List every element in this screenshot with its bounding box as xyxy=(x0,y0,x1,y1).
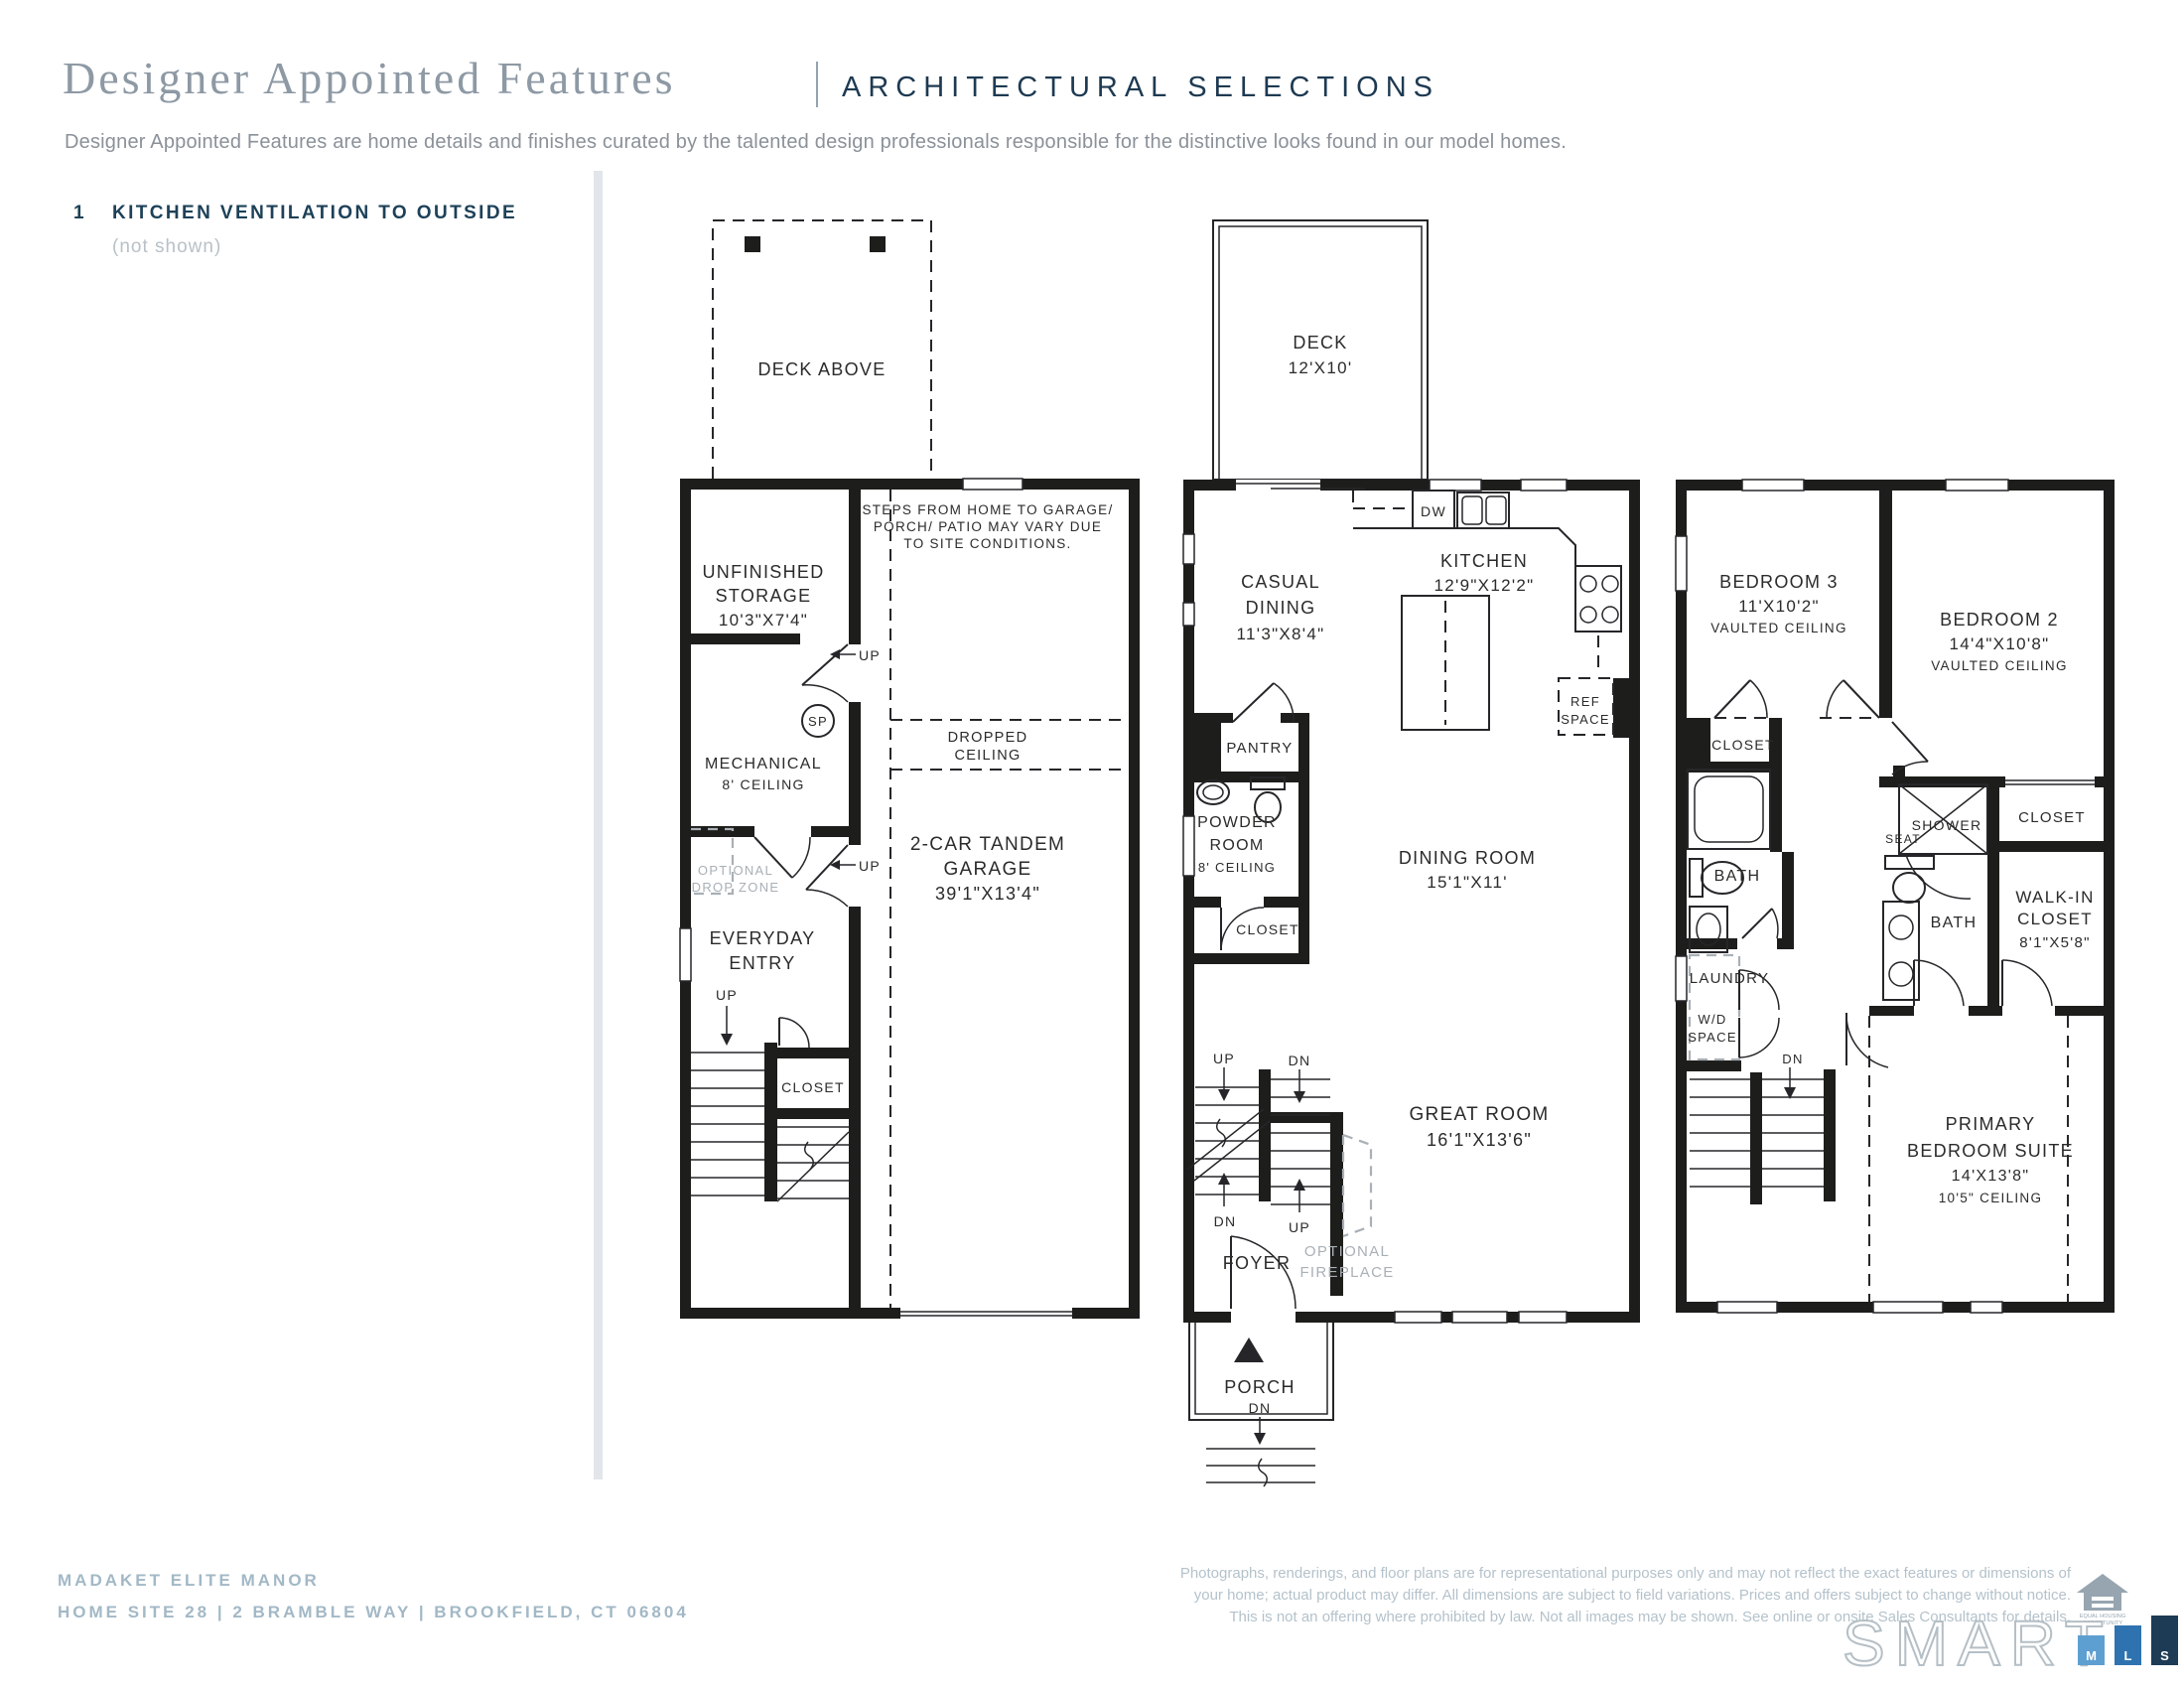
garage-label-1: 2-CAR TANDEM xyxy=(910,834,1065,855)
dn-top-label: DN xyxy=(1289,1053,1311,1068)
home-site-address: HOME SITE 28 | 2 BRAMBLE WAY | BROOKFIEL… xyxy=(58,1603,689,1622)
shower-label: SHOWER xyxy=(1912,817,1982,833)
storage-label-2: STORAGE xyxy=(716,586,812,606)
foyer-label: FOYER xyxy=(1223,1253,1292,1273)
bath1-label: BATH xyxy=(1714,868,1761,885)
storage-dim: 10'3"X7'4" xyxy=(719,611,808,630)
deck-above-outline xyxy=(713,220,931,479)
vertical-divider xyxy=(594,171,603,1479)
wic-dim: 8'1"X5'8" xyxy=(2019,934,2090,951)
powder-ceiling: 8' CEILING xyxy=(1198,860,1276,875)
bed2-label: BEDROOM 2 xyxy=(1940,610,2059,630)
feature-title: KITCHEN VENTILATION TO OUTSIDE xyxy=(112,203,517,224)
deck-above-label: DECK ABOVE xyxy=(757,359,886,379)
wd-label-2: SPACE xyxy=(1688,1030,1737,1045)
bed2-dim: 14'4"X10'8" xyxy=(1950,634,2050,653)
porch-label: PORCH xyxy=(1224,1377,1296,1397)
room-labels: DECK ABOVE UNFINISHED STORAGE 10'3"X7'4"… xyxy=(692,359,1114,1095)
bed2-ceiling: VAULTED CEILING xyxy=(1931,658,2068,673)
pantry-label: PANTRY xyxy=(1226,740,1293,757)
storage-label-1: UNFINISHED xyxy=(702,562,824,582)
seat-label: SEAT xyxy=(1885,832,1921,846)
dining-dim: 15'1"X11' xyxy=(1427,873,1508,892)
disclaimer-line-1: Photographs, renderings, and floor plans… xyxy=(1180,1563,2071,1585)
great-room-label: GREAT ROOM xyxy=(1409,1104,1549,1125)
casual-label-1: CASUAL xyxy=(1241,572,1320,592)
laundry-label: LAUNDRY xyxy=(1690,970,1770,987)
primary-dim: 14'X13'8" xyxy=(1952,1168,2030,1185)
community-name: MADAKET ELITE MANOR xyxy=(58,1571,320,1591)
doors xyxy=(754,644,848,1048)
mls-bar-m: M xyxy=(2078,1635,2105,1665)
room-labels: DECK 12'X10' DW KITCHEN 12'9"X12'2" CASU… xyxy=(1197,333,1610,1416)
site-note-1: STEPS FROM HOME TO GARAGE/ xyxy=(862,502,1113,517)
deck-label: DECK xyxy=(1293,333,1347,352)
section-title: ARCHITECTURAL SELECTIONS xyxy=(842,71,1439,104)
mls-bar-l: L xyxy=(2115,1625,2141,1665)
mechanical-ceiling: 8' CEILING xyxy=(722,776,804,792)
up-entry-label: UP xyxy=(859,858,881,874)
brochure-page: Designer Appointed Features ARCHITECTURA… xyxy=(0,0,2184,1688)
garage-dim: 39'1"X13'4" xyxy=(935,884,1040,904)
entry-label-1: EVERYDAY xyxy=(710,928,816,948)
dropped-ceiling-1: DROPPED xyxy=(948,730,1028,746)
primary-label-1: PRIMARY xyxy=(1946,1114,2036,1134)
dropped-ceiling-2: CEILING xyxy=(954,748,1021,764)
ref-label-1: REF xyxy=(1570,694,1600,709)
bath2-label: BATH xyxy=(1931,914,1978,931)
kitchen-label: KITCHEN xyxy=(1440,551,1528,571)
fireplace-label-2: FIREPLACE xyxy=(1299,1264,1394,1281)
tagline: Designer Appointed Features are home det… xyxy=(65,131,1567,154)
eho-equal-top xyxy=(2092,1597,2114,1601)
great-room-dim: 16'1"X13'6" xyxy=(1427,1130,1532,1150)
entry-label-2: ENTRY xyxy=(729,953,795,973)
dn-label: DN xyxy=(1782,1052,1803,1066)
bedroom-floor-plan: BEDROOM 3 11'X10'2" VAULTED CEILING BEDR… xyxy=(1668,472,2124,1331)
bedroom-doors xyxy=(1714,680,1928,774)
main-floor-plan: DECK 12'X10' DW KITCHEN 12'9"X12'2" CASU… xyxy=(1176,213,1648,1489)
eho-roof xyxy=(2077,1574,2128,1593)
bed3-label: BEDROOM 3 xyxy=(1719,572,1839,592)
wic-label-2: CLOSET xyxy=(2017,910,2093,928)
porch-dn-label: DN xyxy=(1249,1400,1272,1416)
title-divider xyxy=(816,62,818,107)
deck-dim: 12'X10' xyxy=(1289,358,1353,377)
primary-label-2: BEDROOM SUITE xyxy=(1907,1141,2074,1161)
site-note-2: PORCH/ PATIO MAY VARY DUE xyxy=(874,519,1102,534)
closet2-label: CLOSET xyxy=(2018,809,2086,826)
powder-label-1: POWDER xyxy=(1197,814,1277,831)
optional-fireplace-outline xyxy=(1343,1135,1371,1236)
up-stairs-label: UP xyxy=(716,987,738,1003)
casual-label-2: DINING xyxy=(1246,598,1316,618)
sp-label: SP xyxy=(808,714,828,729)
garage-label-2: GARAGE xyxy=(943,859,1031,880)
smart-mls-wordmark: SMART xyxy=(1843,1607,2114,1680)
page-title: Designer Appointed Features xyxy=(63,52,676,104)
kitchen-dim: 12'9"X12'2" xyxy=(1434,576,1535,595)
wic-label-1: WALK-IN xyxy=(2015,888,2094,907)
dn-bottom-label: DN xyxy=(1214,1213,1237,1229)
bed3-ceiling: VAULTED CEILING xyxy=(1710,621,1847,635)
powder-label-2: ROOM xyxy=(1210,837,1265,854)
casual-dim: 11'3"X8'4" xyxy=(1237,625,1325,643)
bed3-dim: 11'X10'2" xyxy=(1738,597,1820,616)
ref-label-2: SPACE xyxy=(1561,712,1610,727)
site-note-3: TO SITE CONDITIONS. xyxy=(903,536,1071,551)
closet-label: CLOSET xyxy=(781,1079,845,1095)
drop-zone-2: DROP ZONE xyxy=(692,880,780,895)
closet3-label: CLOSET xyxy=(1711,737,1775,753)
dining-label: DINING ROOM xyxy=(1399,848,1536,868)
feature-note: (not shown) xyxy=(112,236,221,258)
first-floor-plan: DECK ABOVE UNFINISHED STORAGE 10'3"X7'4"… xyxy=(675,209,1152,1331)
mls-bar-s: S xyxy=(2151,1616,2178,1665)
hall-bath-fixtures xyxy=(1688,770,1778,952)
drop-zone-1: OPTIONAL xyxy=(698,863,773,878)
primary-ceiling: 10'5" CEILING xyxy=(1939,1191,2043,1205)
up-storage-label: UP xyxy=(859,647,881,663)
closet-label: CLOSET xyxy=(1236,921,1299,937)
dw-label: DW xyxy=(1421,503,1446,519)
windows-and-doors-exterior xyxy=(1183,480,1567,1323)
fireplace-label-1: OPTIONAL xyxy=(1304,1243,1390,1260)
up-top-label: UP xyxy=(1213,1051,1235,1066)
mechanical-label: MECHANICAL xyxy=(705,756,822,773)
wd-label-1: W/D xyxy=(1698,1012,1726,1027)
disclaimer-line-2: your home; actual product may differ. Al… xyxy=(1180,1585,2071,1607)
up-bottom-label: UP xyxy=(1289,1219,1310,1235)
feature-number: 1 xyxy=(73,203,84,224)
